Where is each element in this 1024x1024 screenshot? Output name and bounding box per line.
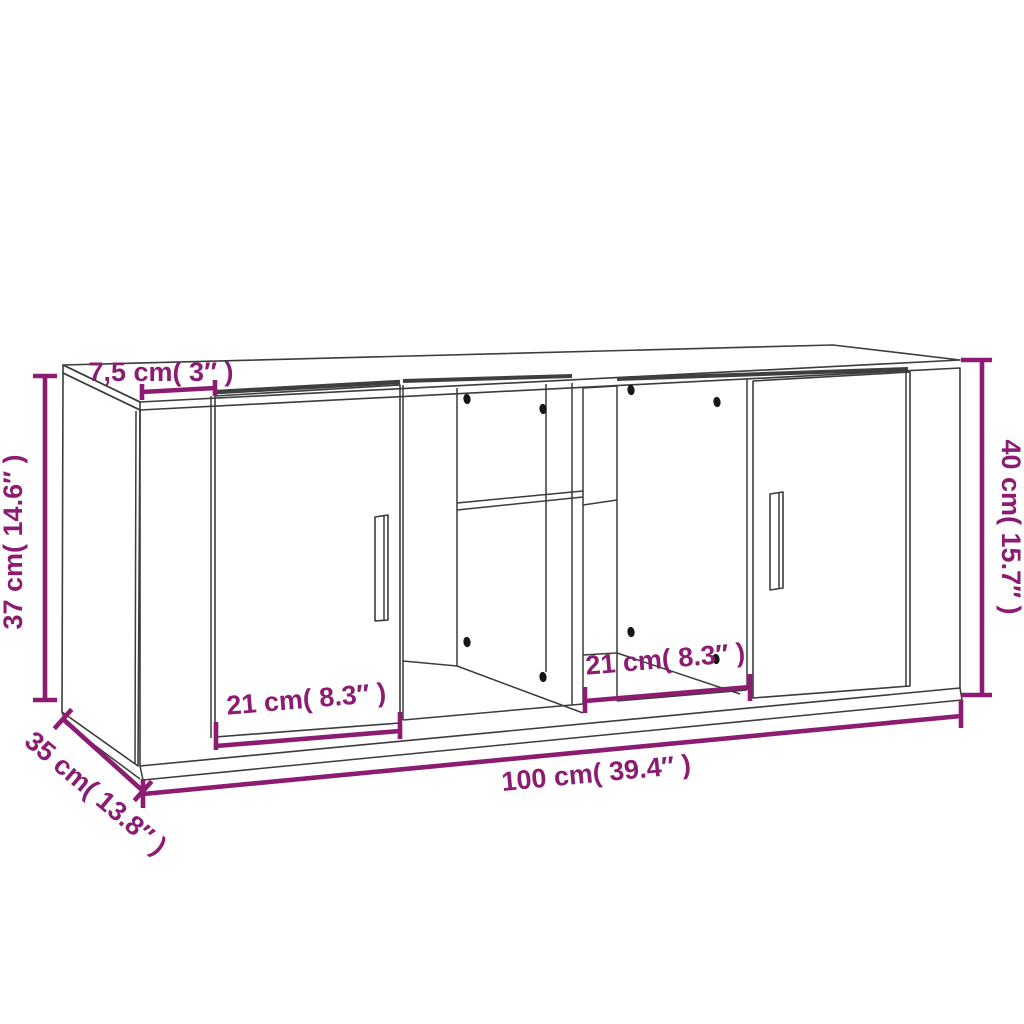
dim-label-right-door-width: 21 cm( 8.3″ ) <box>584 637 746 680</box>
peg-hole-5 <box>627 384 636 395</box>
opening1-bottom-edge <box>403 704 583 720</box>
dim-label-top-depth: 7,5 cm( 3″ ) <box>89 357 234 387</box>
shelf-front-top-edge <box>457 491 583 503</box>
plinth-left-join <box>140 766 143 780</box>
peg-hole-3 <box>463 636 472 647</box>
dim-label-total-height: 40 cm( 15.7″ ) <box>996 439 1024 614</box>
right-door-handle <box>770 492 783 590</box>
peg-hole-4 <box>539 671 548 682</box>
opening1-floor-back-edge <box>403 661 457 666</box>
product-dimension-diagram: 7,5 cm( 3″ )37 cm( 14.6″ )40 cm( 15.7″ )… <box>0 0 1024 1024</box>
side-front-edge-inner <box>135 411 136 764</box>
dim-line-top-depth-segment <box>142 388 215 392</box>
peg-hole-1 <box>463 393 472 404</box>
dim-label-side-height: 37 cm( 14.6″ ) <box>0 454 28 629</box>
right-door <box>753 372 910 698</box>
dim-label-left-door-width: 21 cm( 8.3″ ) <box>225 677 387 720</box>
left-door-handle <box>375 515 388 621</box>
shelf-front-bottom-edge <box>457 497 583 510</box>
dim-line-side-height <box>33 376 57 700</box>
top-gap-shadow-middle <box>403 376 572 381</box>
peg-hole-6 <box>713 396 722 407</box>
left-side-face <box>62 373 140 766</box>
peg-hole-7 <box>627 626 636 637</box>
dim-line-total-height <box>961 360 992 695</box>
shelf-side-edge <box>583 500 617 505</box>
cabinet-line-drawing: 7,5 cm( 3″ )37 cm( 14.6″ )40 cm( 15.7″ )… <box>0 0 1024 1024</box>
dim-line-right-door-width-segment <box>585 687 750 701</box>
dim-line-right-door-width <box>585 674 750 713</box>
